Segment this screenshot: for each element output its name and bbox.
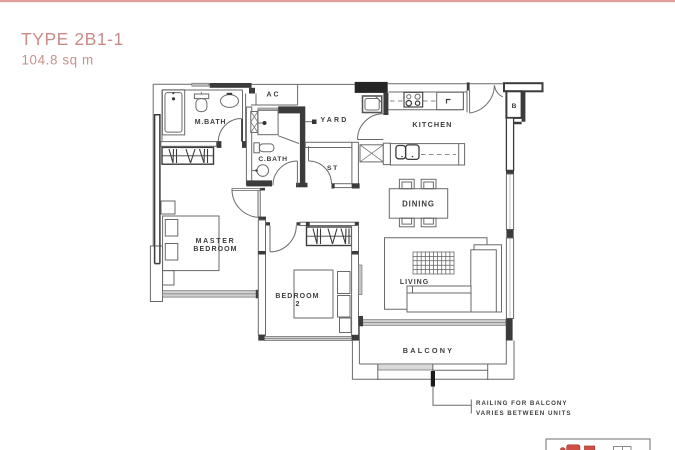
svg-text:BEDROOM: BEDROOM [275, 293, 319, 300]
svg-text:2: 2 [296, 301, 300, 308]
svg-text:KITCHEN: KITCHEN [412, 120, 452, 129]
svg-text:VARIES BETWEEN UNITS: VARIES BETWEEN UNITS [476, 410, 572, 417]
svg-text:DINING: DINING [402, 199, 435, 208]
svg-text:LIVING: LIVING [400, 279, 429, 286]
svg-text:TYPE 2B1-1: TYPE 2B1-1 [21, 29, 124, 49]
svg-text:YARD: YARD [321, 117, 349, 124]
svg-text:M.BATH: M.BATH [195, 119, 227, 126]
svg-text:BALCONY: BALCONY [403, 346, 454, 355]
svg-text:104.8 sq m: 104.8 sq m [22, 53, 94, 68]
svg-text:ST: ST [327, 165, 339, 172]
svg-text:C.BATH: C.BATH [258, 156, 287, 163]
svg-text:RAILING FOR BALCONY: RAILING FOR BALCONY [476, 400, 568, 407]
svg-text:BEDROOM: BEDROOM [193, 246, 237, 253]
svg-text:MASTER: MASTER [196, 238, 236, 245]
svg-text:B: B [512, 103, 517, 110]
svg-text:AC: AC [266, 92, 280, 99]
